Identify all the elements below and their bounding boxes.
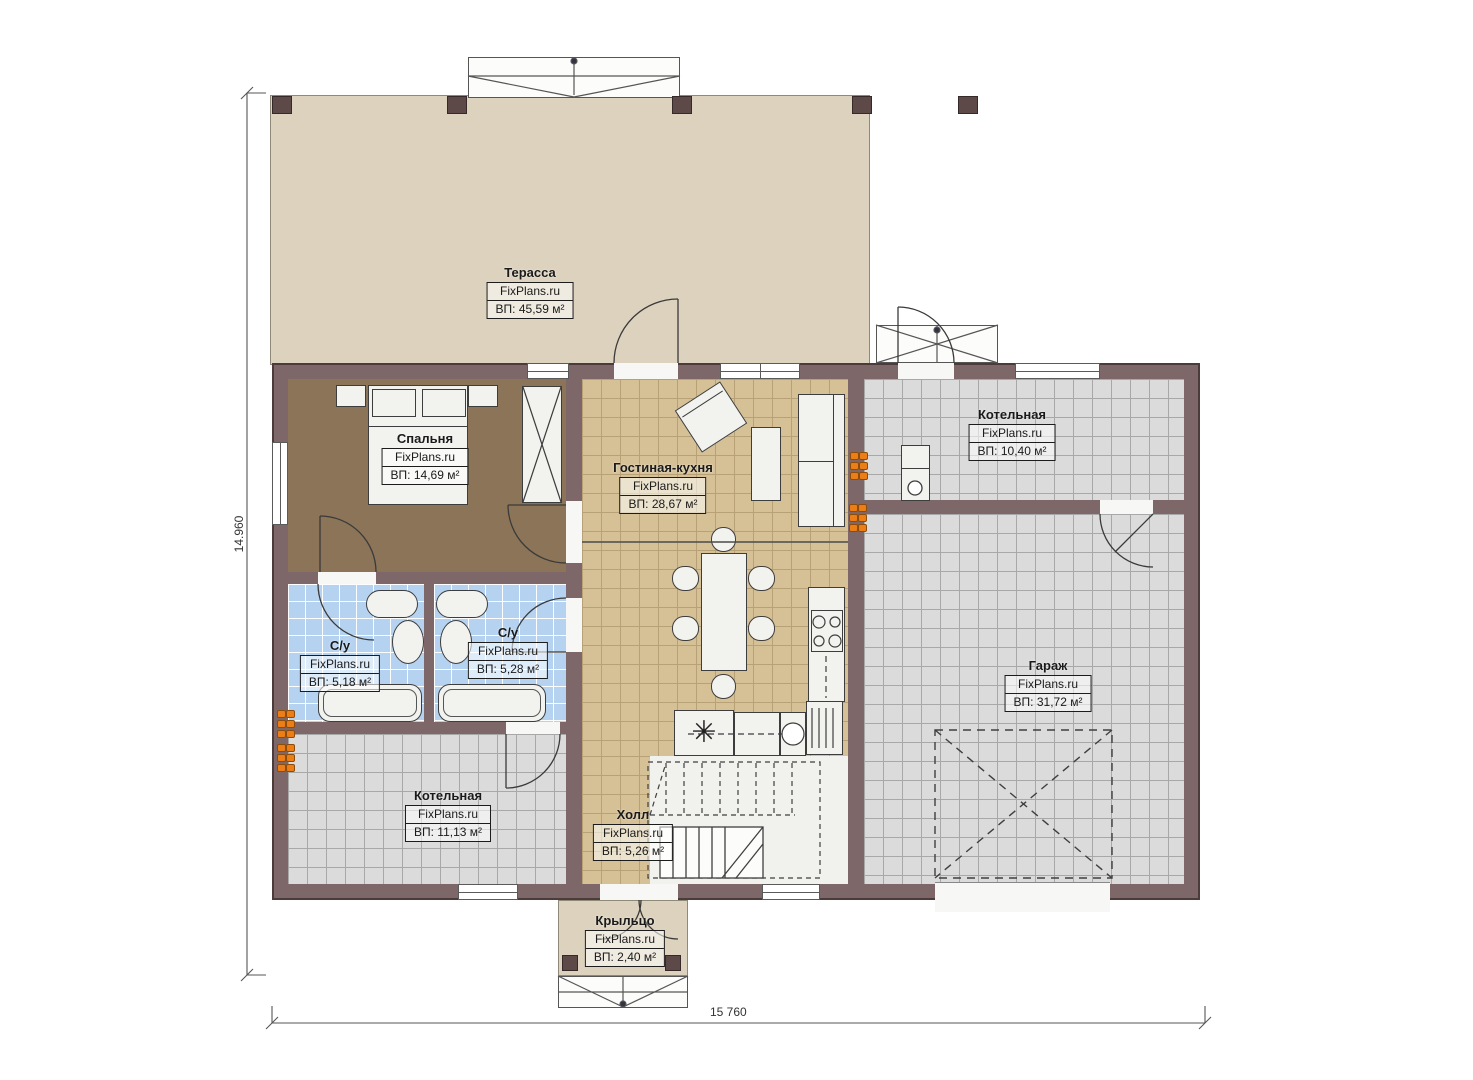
- brand-label: FixPlans.ru: [406, 806, 490, 823]
- toilet: [436, 590, 488, 618]
- brand-label: FixPlans.ru: [301, 656, 379, 673]
- brand-label: FixPlans.ru: [970, 425, 1055, 442]
- room-name: Холл: [617, 807, 650, 822]
- area-label: ВП: 5,26 м²: [594, 842, 672, 860]
- dimension-height: 14.960: [232, 511, 246, 557]
- room-label-porch: Крыльцо FixPlans.ru ВП: 2,40 м²: [585, 913, 665, 967]
- pillow: [422, 389, 466, 417]
- heating-vent: [277, 744, 293, 772]
- room-name: С/у: [498, 625, 518, 640]
- room-name: Терасса: [504, 265, 556, 280]
- dimension-width: 15 760: [710, 1005, 747, 1019]
- room-label-hall: Холл FixPlans.ru ВП: 5,26 м²: [593, 807, 673, 861]
- room-label-living-kitchen: Гостиная-кухня FixPlans.ru ВП: 28,67 м²: [613, 460, 713, 514]
- bedroom-window: [272, 442, 288, 525]
- room-label-boiler-bottom: Котельная FixPlans.ru ВП: 11,13 м²: [405, 788, 491, 842]
- toilet: [366, 590, 418, 618]
- room-name: Крыльцо: [595, 913, 654, 928]
- area-label: ВП: 45,59 м²: [488, 300, 573, 318]
- chair: [672, 566, 699, 591]
- heating-vent: [277, 710, 293, 738]
- nightstand: [468, 385, 498, 407]
- room-label-bathroom-right: С/у FixPlans.ru ВП: 5,28 м²: [468, 625, 548, 679]
- bedroom-door-opening: [318, 572, 376, 584]
- room-name: Котельная: [414, 788, 482, 803]
- entrance-door-opening: [898, 363, 954, 379]
- room-label-bathroom-left: С/у FixPlans.ru ВП: 5,18 м²: [300, 638, 380, 692]
- terrace-steps: [468, 57, 680, 98]
- chair: [748, 616, 775, 641]
- entrance-steps: [876, 325, 998, 363]
- brand-label: FixPlans.ru: [586, 931, 664, 948]
- boiler-unit: [901, 445, 930, 501]
- porch-steps: [558, 976, 688, 1008]
- chair: [711, 527, 736, 552]
- porch-post: [665, 955, 681, 971]
- room-label-boiler-top: Котельная FixPlans.ru ВП: 10,40 м²: [969, 407, 1056, 461]
- garage-door-opening: [935, 882, 1110, 912]
- area-label: ВП: 14,69 м²: [383, 466, 468, 484]
- boiler-garage-door-opening: [1100, 500, 1153, 514]
- wardrobe: [522, 386, 562, 503]
- terrace-post: [672, 96, 692, 114]
- stove: [811, 610, 843, 652]
- chair: [672, 616, 699, 641]
- brand-label: FixPlans.ru: [469, 643, 547, 660]
- bathtub: [438, 684, 546, 722]
- top-window-1: [527, 363, 569, 379]
- area-label: ВП: 2,40 м²: [586, 948, 664, 966]
- heating-vent: [849, 504, 865, 532]
- room-name: Котельная: [978, 407, 1046, 422]
- room-label-bedroom: Спальня FixPlans.ru ВП: 14,69 м²: [382, 431, 469, 485]
- brand-label: FixPlans.ru: [488, 283, 573, 300]
- floor-plan: ✳: [0, 0, 1473, 1080]
- brand-label: FixPlans.ru: [383, 449, 468, 466]
- bedroom-living-door-opening: [566, 501, 582, 563]
- room-name: Спальня: [397, 431, 453, 446]
- room-label-terrace: Терасса FixPlans.ru ВП: 45,59 м²: [487, 265, 574, 319]
- terrace-floor: [270, 95, 870, 365]
- brand-label: FixPlans.ru: [621, 478, 706, 495]
- nightstand: [336, 385, 366, 407]
- pillow: [372, 389, 416, 417]
- area-label: ВП: 28,67 м²: [621, 495, 706, 513]
- boiler-bottom-door-opening: [506, 722, 560, 734]
- chair: [748, 566, 775, 591]
- area-label: ВП: 10,40 м²: [970, 442, 1055, 460]
- area-label: ВП: 5,28 м²: [469, 660, 547, 678]
- terrace-post: [852, 96, 872, 114]
- stair-zone-floor: [650, 756, 848, 884]
- porch-door-opening: [600, 884, 678, 900]
- room-name: С/у: [330, 638, 350, 653]
- boiler-bottom-window: [458, 884, 518, 900]
- room-label-garage: Гараж FixPlans.ru ВП: 31,72 м²: [1005, 658, 1092, 712]
- dishwasher: [806, 701, 843, 755]
- bathroom-right-door-opening: [566, 598, 582, 652]
- terrace-door-opening: [614, 363, 678, 379]
- heating-vent: [850, 452, 866, 480]
- sofa: [798, 394, 845, 527]
- top-window-2: [720, 363, 800, 379]
- chair: [711, 674, 736, 699]
- area-label: ВП: 11,13 м²: [406, 823, 490, 841]
- boiler-top-window: [1015, 363, 1100, 379]
- bottom-window-2: [762, 884, 820, 900]
- sink: [392, 620, 424, 664]
- room-name: Гараж: [1029, 658, 1068, 673]
- pergola-post: [958, 96, 978, 114]
- kitchen-counter-mid: [734, 712, 780, 756]
- brand-label: FixPlans.ru: [1006, 676, 1091, 693]
- room-name: Гостиная-кухня: [613, 460, 713, 475]
- kitchen-island: ✳: [674, 710, 734, 756]
- area-label: ВП: 31,72 м²: [1006, 693, 1091, 711]
- brand-label: FixPlans.ru: [594, 825, 672, 842]
- kitchen-sink-cabinet: [780, 712, 806, 756]
- area-label: ВП: 5,18 м²: [301, 673, 379, 691]
- coffee-table: [751, 427, 781, 501]
- dining-table: [701, 553, 747, 671]
- cooktop-icon: ✳: [675, 713, 733, 753]
- porch-post: [562, 955, 578, 971]
- terrace-post: [447, 96, 467, 114]
- terrace-post: [272, 96, 292, 114]
